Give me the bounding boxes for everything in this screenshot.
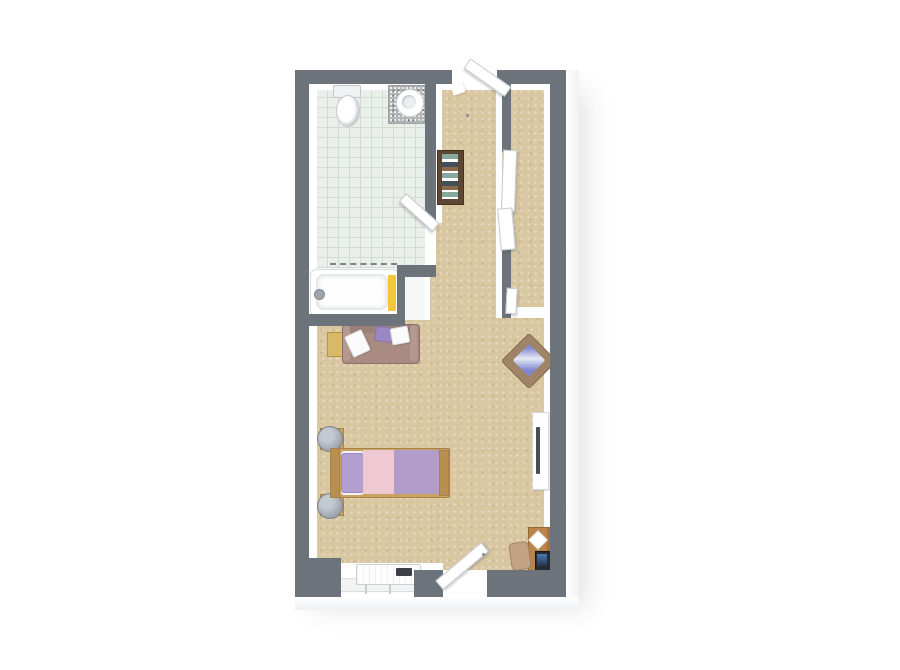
bookshelf-books [442, 154, 458, 199]
bathtub-basin [316, 274, 388, 310]
toilet-bowl [336, 95, 360, 127]
outer-wall-bottom-left-corner [295, 558, 341, 597]
outer-wall-face-right [566, 70, 579, 597]
towel [388, 275, 396, 311]
outer-wall-face-bottom [295, 597, 579, 610]
ptac-vent [396, 568, 412, 576]
bathroom-wall-right [425, 70, 436, 223]
wardrobe-door-1 [501, 150, 517, 212]
closet-floor [511, 88, 544, 310]
shower-head-icon [314, 289, 325, 300]
bed-blanket-lavender [394, 450, 439, 494]
bed-blanket-pink [363, 450, 394, 494]
tv-console [532, 412, 549, 490]
bed-headboard [330, 448, 340, 498]
tv-screen [536, 427, 540, 474]
outer-wall-left [295, 70, 309, 597]
outer-wall-bottom-right [487, 570, 566, 597]
sink-drain [402, 95, 416, 109]
outer-wall-right [550, 70, 566, 597]
armchair-cushion [513, 344, 546, 377]
monitor-screen [537, 554, 547, 566]
floor-plan-canvas [0, 0, 900, 670]
patio-door-handle [482, 553, 485, 556]
desk-chair [508, 541, 532, 572]
bathroom-wall-bottom [295, 314, 405, 326]
bed-pillow [341, 453, 364, 493]
sofa-arm-right [410, 325, 417, 361]
shower-curtain [330, 263, 397, 265]
sofa-pillow-white-right [390, 326, 411, 346]
entry-door-handle [466, 114, 469, 117]
wardrobe-door-3 [505, 288, 517, 315]
inner-face-left [309, 84, 317, 570]
bed-footboard [439, 450, 449, 496]
